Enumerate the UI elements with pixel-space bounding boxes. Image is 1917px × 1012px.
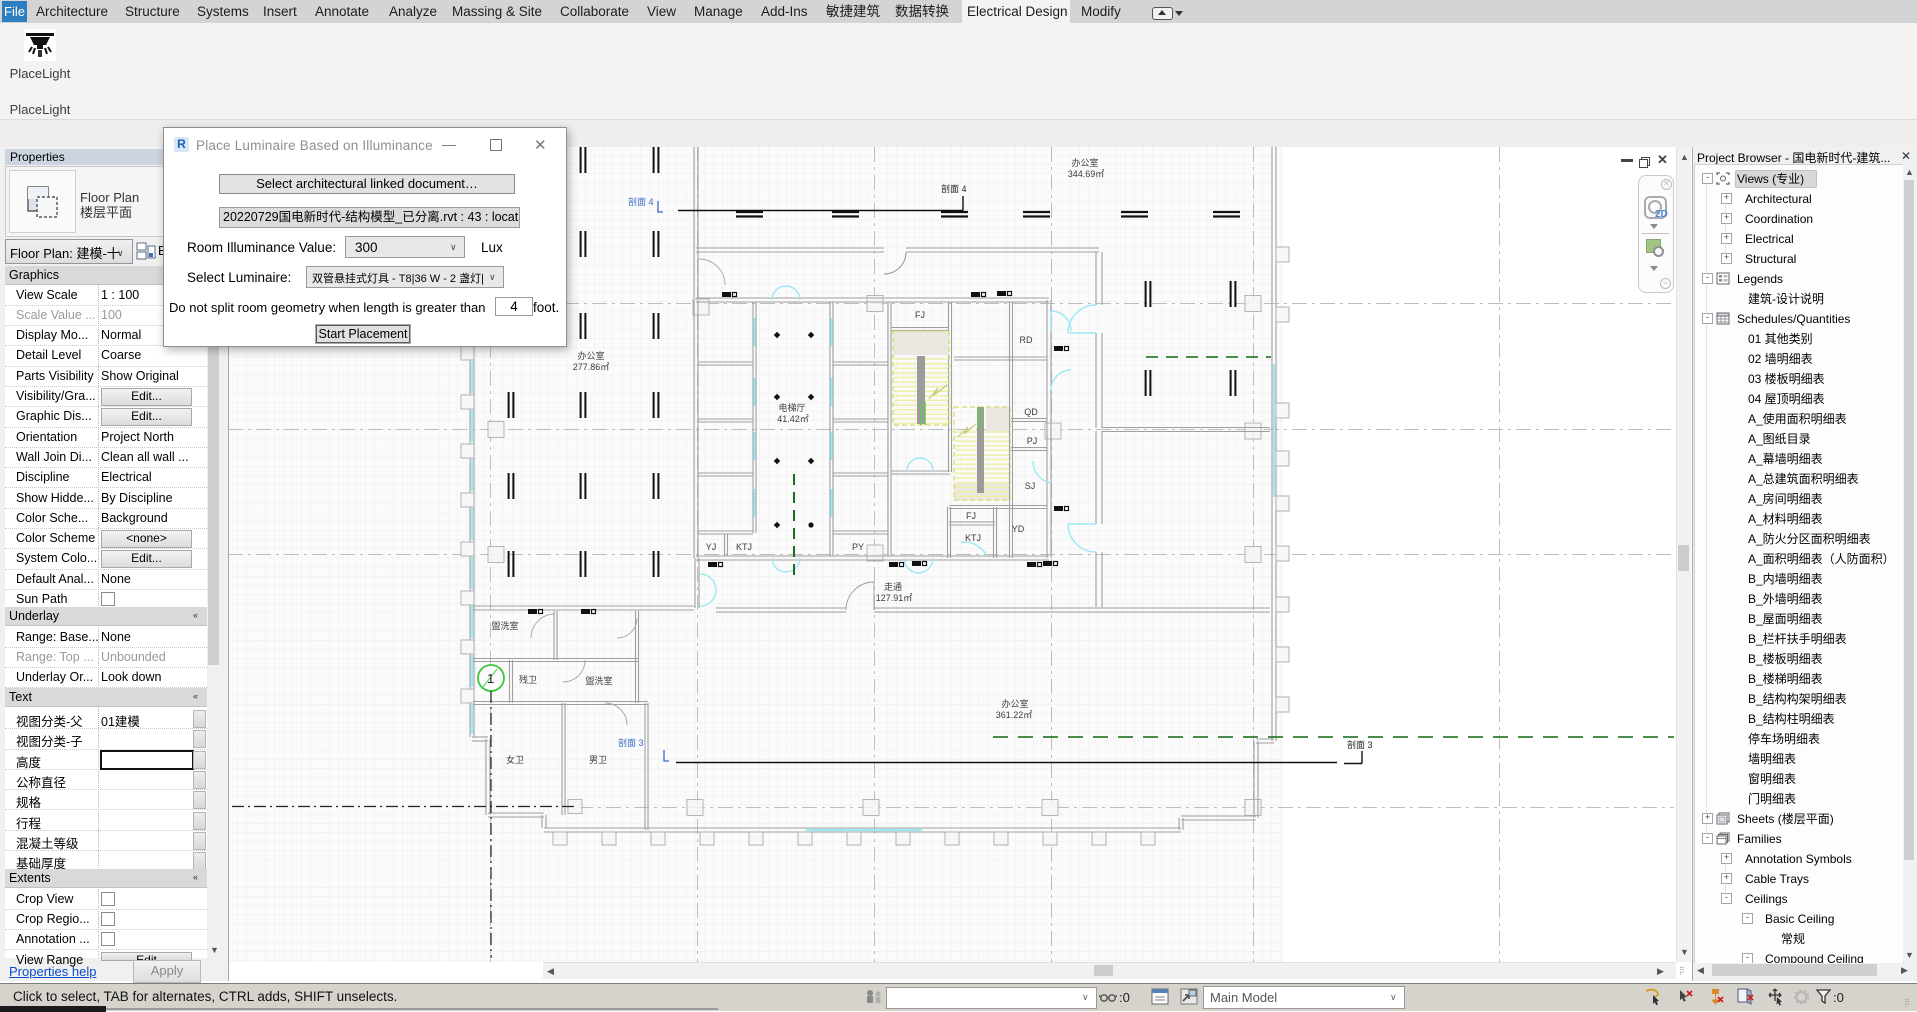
svg-text:剖面 3: 剖面 3 (618, 737, 644, 748)
svg-text:344.69㎡: 344.69㎡ (1068, 169, 1105, 179)
svg-text:剖面 4: 剖面 4 (628, 196, 654, 207)
svg-text:剖面 3: 剖面 3 (1347, 739, 1373, 750)
svg-text:剖面 4: 剖面 4 (941, 183, 967, 194)
svg-text:1: 1 (487, 671, 494, 686)
svg-text:YJ: YJ (706, 542, 717, 552)
svg-text:PY: PY (852, 542, 864, 552)
svg-text:女卫: 女卫 (506, 754, 524, 765)
svg-text:盥洗室: 盥洗室 (585, 675, 612, 686)
svg-text:YD: YD (1012, 524, 1025, 534)
svg-text:361.22㎡: 361.22㎡ (996, 710, 1033, 720)
svg-text:男卫: 男卫 (589, 755, 607, 765)
svg-text:FJ: FJ (915, 310, 925, 320)
svg-text:127.91㎡: 127.91㎡ (876, 593, 913, 603)
svg-text:277.86㎡: 277.86㎡ (573, 362, 610, 372)
svg-text:残卫: 残卫 (519, 674, 537, 685)
svg-text:QD: QD (1024, 407, 1038, 417)
svg-text:RD: RD (1020, 335, 1033, 345)
svg-text:FJ: FJ (966, 511, 976, 521)
svg-text:SJ: SJ (1025, 481, 1036, 491)
svg-text:电梯厅: 电梯厅 (778, 402, 805, 413)
svg-text:盥洗室: 盥洗室 (491, 620, 518, 631)
svg-text:PJ: PJ (1027, 436, 1038, 446)
svg-text:办公室: 办公室 (577, 350, 604, 361)
svg-text:41.42㎡: 41.42㎡ (777, 414, 809, 424)
svg-text:办公室: 办公室 (1001, 698, 1028, 709)
svg-text:办公室: 办公室 (1071, 157, 1098, 168)
svg-text:KTJ: KTJ (965, 533, 981, 543)
svg-text:KTJ: KTJ (736, 542, 752, 552)
svg-text:走通: 走通 (884, 582, 902, 592)
